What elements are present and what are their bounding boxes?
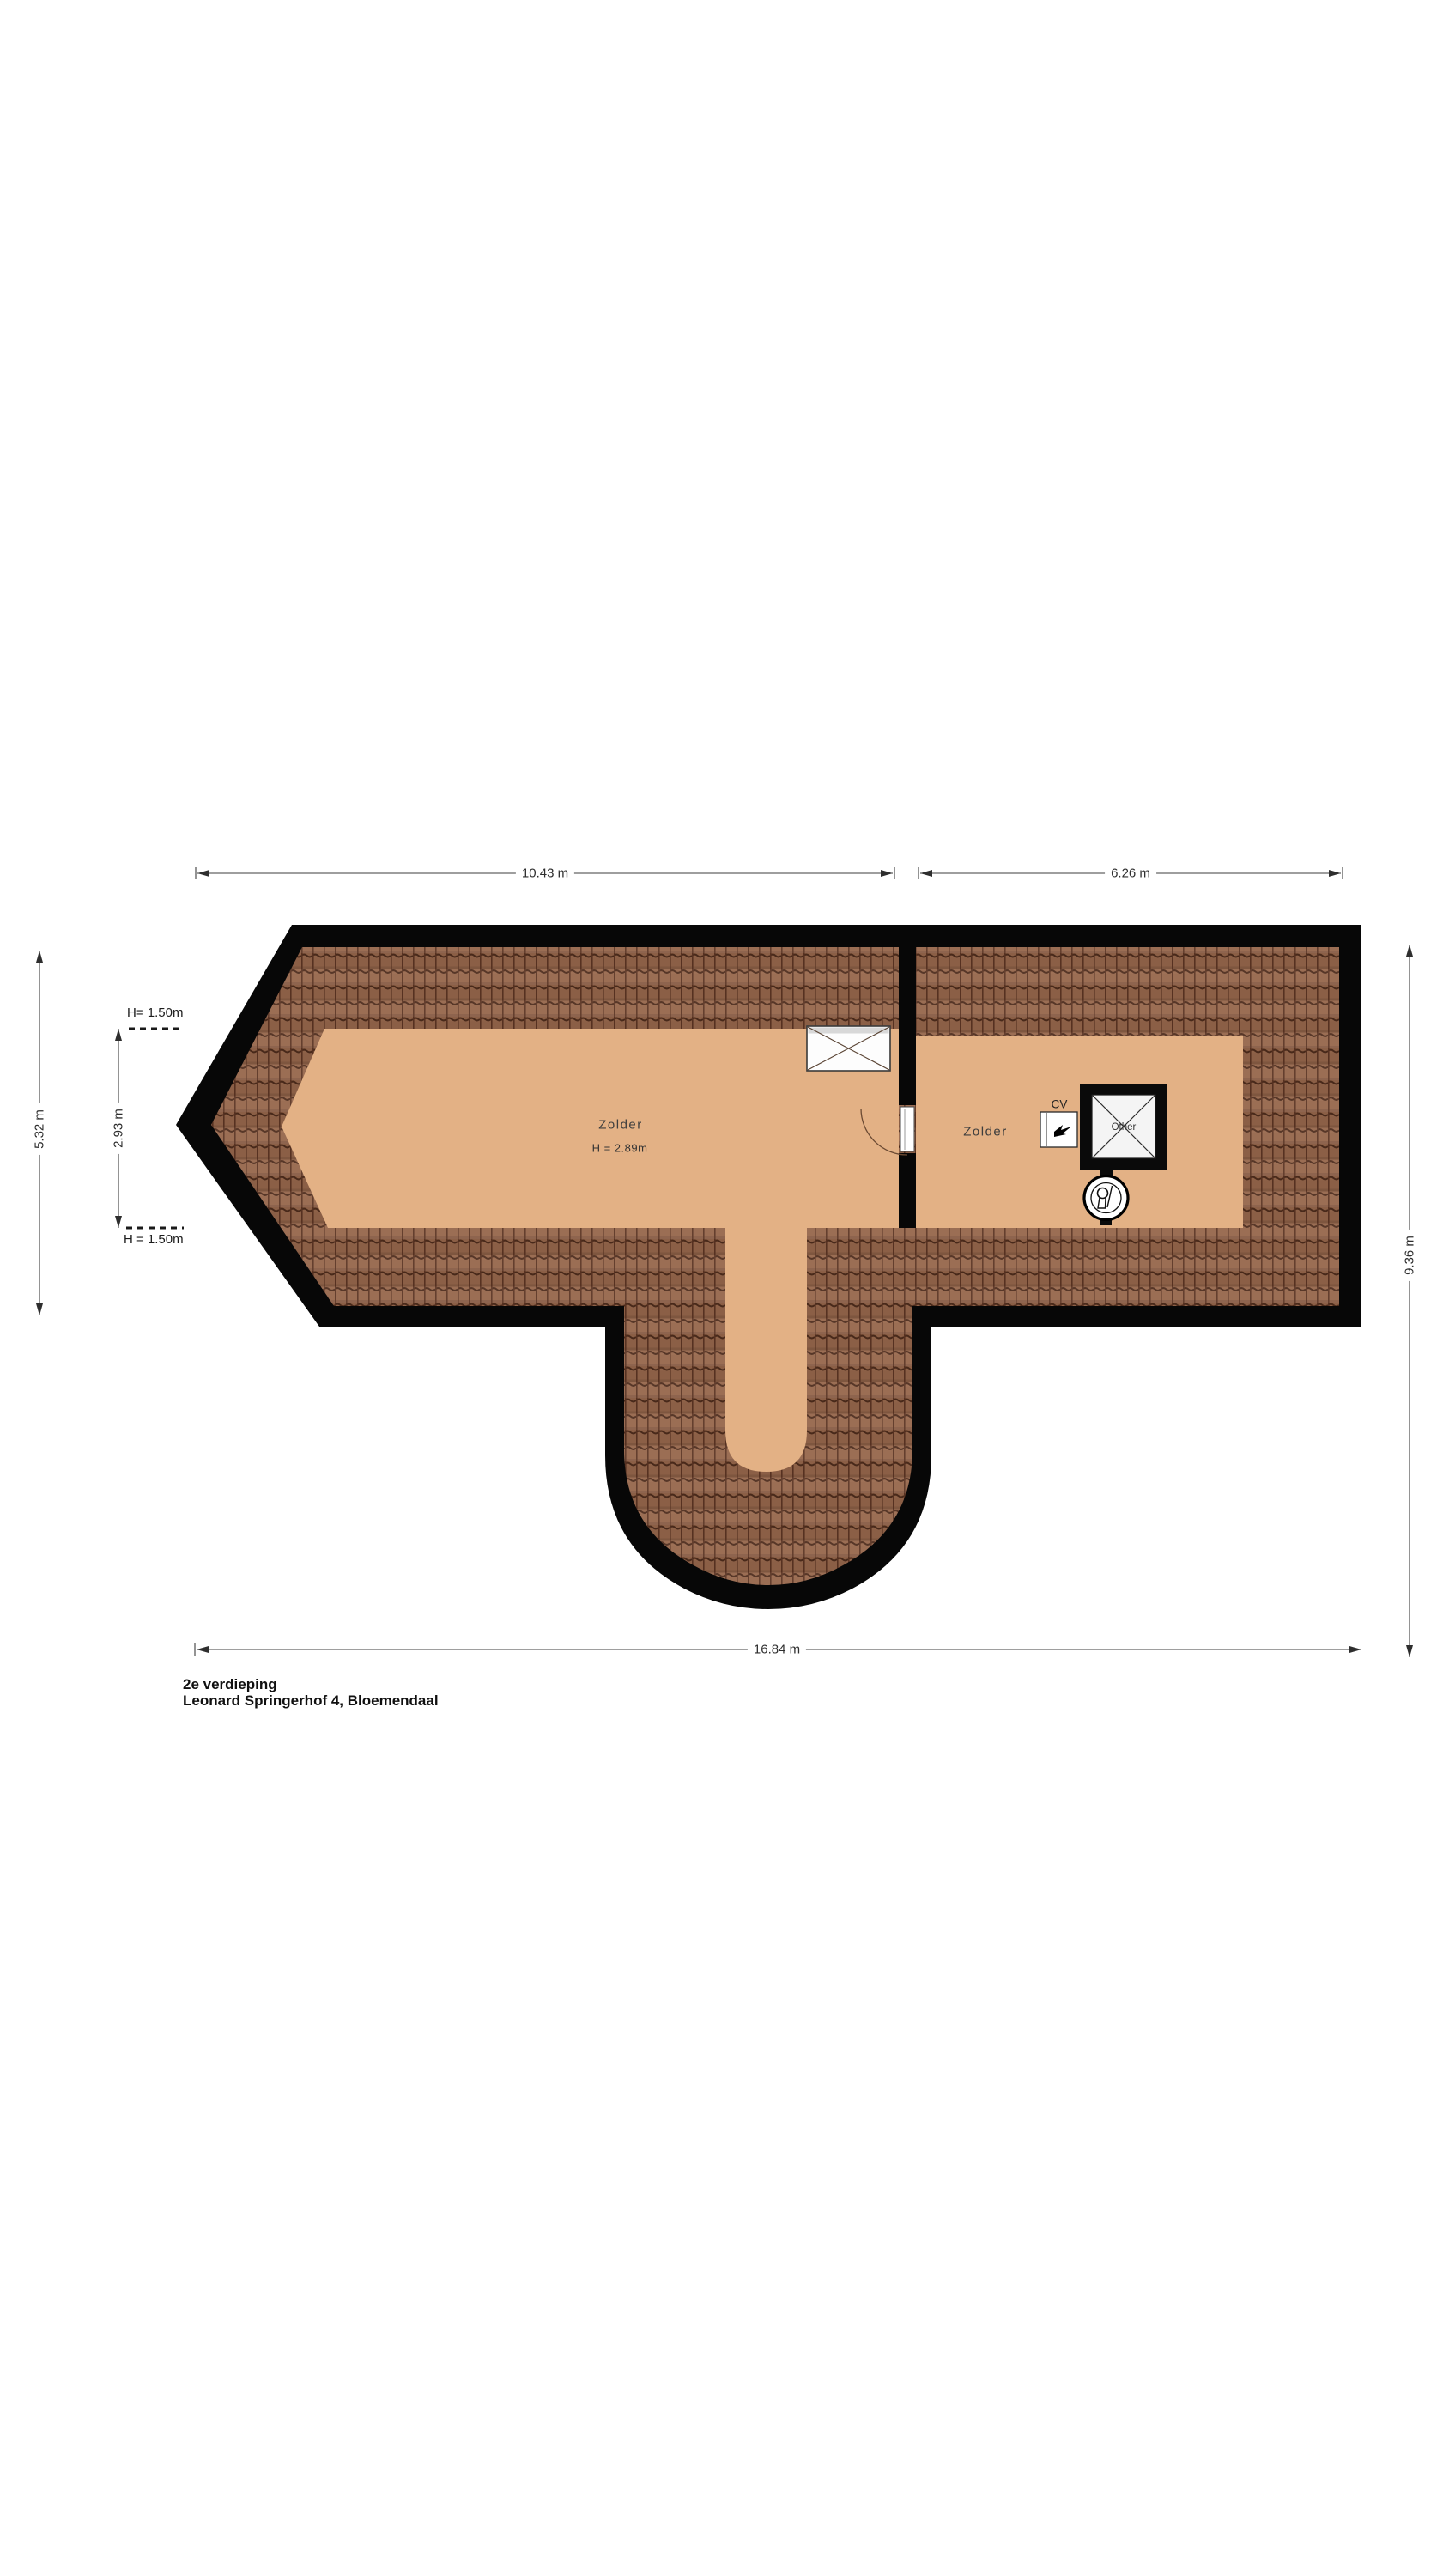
roof-window — [807, 1026, 890, 1071]
dim-right-label: 9.36 m — [1403, 1230, 1417, 1281]
shaft-label: Other — [1112, 1122, 1137, 1133]
dim-top-right-label: 6.26 m — [1105, 866, 1156, 881]
right-room-label: Zolder — [963, 1125, 1008, 1139]
left-room-height-label: H = 2.89m — [592, 1142, 648, 1155]
divider-wall-lower — [899, 1153, 916, 1228]
dim-inner-left-label: 2.93 m — [112, 1103, 126, 1154]
height-contour-dashes — [126, 1029, 185, 1228]
dim-left-label: 5.32 m — [33, 1103, 47, 1155]
left-room-label: Zolder — [598, 1118, 643, 1133]
cv-boiler-icon — [1040, 1112, 1077, 1147]
height-contour-bottom-label: H = 1.50m — [124, 1232, 184, 1247]
height-contour-top-label: H= 1.50m — [127, 1005, 183, 1020]
floorplan-svg — [0, 0, 1449, 2576]
address-line: Leonard Springerhof 4, Bloemendaal — [183, 1692, 439, 1709]
divider-wall-upper — [899, 925, 916, 1105]
cv-boiler-label: CV — [1052, 1098, 1068, 1111]
dim-bottom-label: 16.84 m — [748, 1643, 806, 1657]
floor-title: 2e verdieping — [183, 1676, 277, 1692]
dim-top-left-label: 10.43 m — [516, 866, 574, 881]
door-leaf — [900, 1107, 914, 1151]
